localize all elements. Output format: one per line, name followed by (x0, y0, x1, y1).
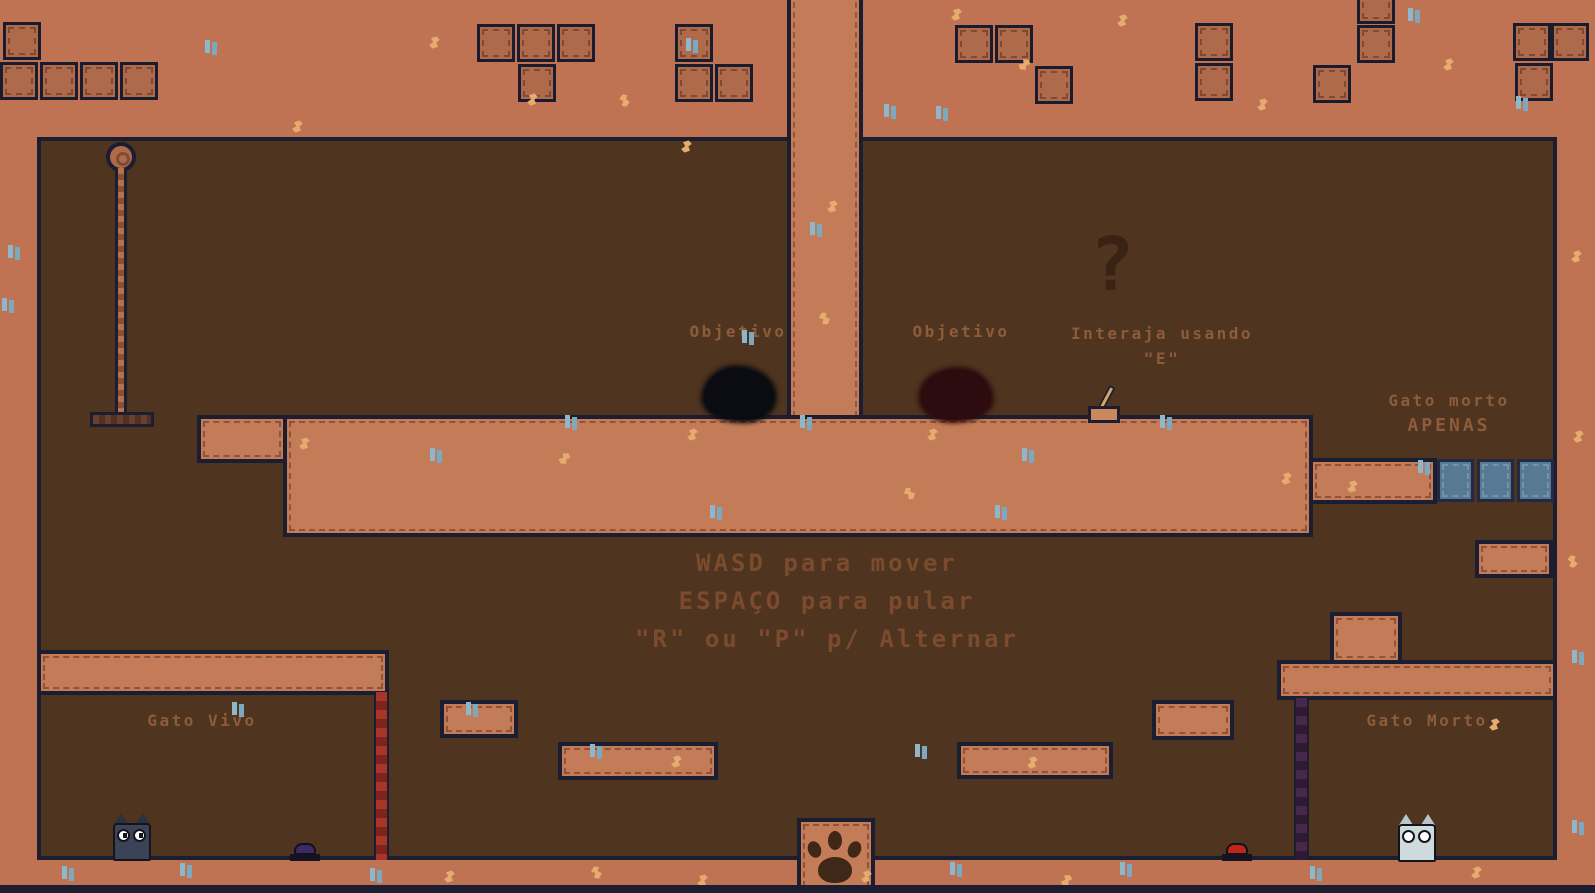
tile-block (3, 22, 41, 60)
grass-tuft-decoration (686, 38, 691, 51)
rope-platform (90, 412, 154, 427)
controls-line3: "R" ou "P" p/ Alternar (635, 625, 1019, 653)
grass-tuft-decoration (1572, 820, 1577, 833)
tile-block (1195, 63, 1233, 101)
controls-line2: ESPAÇO para pular (679, 587, 976, 615)
game-viewport: ? Objetivo Objetivo Interaja usando"E" G… (0, 0, 1595, 893)
floating-platform-2 (558, 742, 718, 780)
grass-tuft-decoration (810, 222, 815, 235)
sparkle-decoration (1116, 13, 1128, 28)
sparkle-decoration (1570, 249, 1582, 264)
tile-block (557, 24, 595, 62)
button-blue[interactable] (290, 843, 320, 861)
sparkle-decoration (1572, 429, 1584, 444)
ghost-cat-sprite[interactable] (1396, 814, 1438, 862)
main-platform (283, 415, 1313, 537)
tile-block (1313, 65, 1351, 103)
grass-tuft-decoration (205, 40, 210, 53)
sparkle-decoration (1470, 865, 1482, 880)
grass-tuft-decoration (1418, 460, 1423, 473)
tile-block (40, 62, 78, 100)
tile-block (955, 25, 993, 63)
cat-pupil-icon (139, 833, 143, 838)
grass-tuft-decoration (710, 505, 715, 518)
grass-tuft-decoration (62, 866, 67, 879)
tile-block (477, 24, 515, 62)
door-live-room (374, 692, 389, 860)
sparkle-decoration (291, 119, 303, 134)
sparkle-decoration (428, 35, 440, 50)
grass-tuft-decoration (800, 415, 805, 428)
button-red[interactable] (1222, 843, 1252, 861)
grass-tuft-decoration (950, 862, 955, 875)
tile-block (0, 62, 38, 100)
controls-line1: WASD para mover (696, 549, 958, 577)
cat-eye-icon (1402, 830, 1415, 843)
grass-tuft-decoration (1120, 862, 1125, 875)
paw-print-icon (806, 831, 864, 885)
controls-help-text: WASD para moverESPAÇO para pular"R" ou "… (577, 544, 1077, 658)
floating-platform-1 (440, 700, 518, 738)
ledge-platform-left (197, 415, 287, 463)
tile-block (517, 24, 555, 62)
ghost-only-line1: Gato morto (1388, 391, 1509, 410)
right-wall-ledge (1475, 540, 1553, 578)
ghost-tile-1 (1437, 459, 1474, 502)
tile-block (120, 62, 158, 100)
lever[interactable] (1088, 406, 1120, 423)
grass-tuft-decoration (180, 863, 185, 876)
sparkle-decoration (590, 865, 604, 881)
tile-block (80, 62, 118, 100)
grass-tuft-decoration (936, 106, 941, 119)
ghost-only-line2: APENAS (1407, 415, 1490, 436)
grass-tuft-decoration (8, 245, 13, 258)
grass-tuft-decoration (884, 104, 889, 117)
ghost-only-hint: Gato mortoAPENAS (1359, 388, 1539, 438)
zone-label-live: Gato Vivo (102, 708, 302, 733)
interact-hint: Interaja usando"E" (1042, 321, 1282, 371)
grass-tuft-decoration (1516, 96, 1521, 109)
ghost-tile-2 (1477, 459, 1514, 502)
live-cat-sprite[interactable] (111, 813, 153, 861)
screen-bottom-border (0, 885, 1595, 893)
grass-tuft-decoration (430, 448, 435, 461)
objective-label-left: Objetivo (658, 319, 818, 344)
tile-block (1357, 0, 1395, 24)
floating-platform-4 (1152, 700, 1234, 740)
grass-tuft-decoration (995, 505, 1000, 518)
grass-tuft-decoration (565, 415, 570, 428)
grass-tuft-decoration (1022, 448, 1027, 461)
tile-block (1513, 23, 1551, 61)
button-red-base (1222, 854, 1252, 861)
dead-room-upper-block (1330, 612, 1402, 664)
sparkle-decoration (950, 7, 962, 22)
button-blue-base (290, 854, 320, 861)
interact-hint-line1: Interaja usando (1071, 324, 1253, 343)
grass-tuft-decoration (742, 330, 747, 343)
grass-tuft-decoration (466, 702, 471, 715)
ghost-tile-3 (1517, 459, 1554, 502)
grass-tuft-decoration (370, 868, 375, 881)
sparkle-decoration (443, 869, 455, 884)
grass-tuft-decoration (590, 744, 595, 757)
sparkle-decoration (1256, 97, 1268, 112)
sparkle-decoration (1442, 57, 1454, 72)
tile-block (715, 64, 753, 102)
central-pillar (787, 0, 863, 419)
grass-tuft-decoration (2, 298, 7, 311)
tile-block (1551, 23, 1589, 61)
cat-eye-icon (1418, 830, 1431, 843)
interact-hint-line2: "E" (1144, 349, 1180, 368)
cat-pupil-icon (123, 833, 127, 838)
rope-chain[interactable] (115, 168, 127, 418)
tile-block (675, 24, 713, 62)
sparkle-decoration (618, 93, 631, 108)
objective-label-right: Objetivo (881, 319, 1041, 344)
tile-block (1357, 25, 1395, 63)
dead-room-roof-platform (1277, 660, 1557, 700)
grass-tuft-decoration (1310, 866, 1315, 879)
sparkle-decoration (1566, 554, 1578, 569)
door-dead-room (1294, 698, 1309, 860)
grass-tuft-decoration (1160, 415, 1165, 428)
cat-body (113, 823, 151, 861)
grass-tuft-decoration (1572, 650, 1577, 663)
question-mark-icon: ? (1080, 228, 1144, 302)
grass-tuft-decoration (232, 702, 237, 715)
grass-tuft-decoration (915, 744, 920, 757)
tile-block (995, 25, 1033, 63)
live-room-roof-platform (37, 650, 389, 695)
tile-block (1195, 23, 1233, 61)
objective-blob-red (921, 370, 991, 420)
grass-tuft-decoration (1408, 8, 1413, 21)
tile-block (1035, 66, 1073, 104)
tile-block (675, 64, 713, 102)
cat-body (1398, 824, 1436, 862)
